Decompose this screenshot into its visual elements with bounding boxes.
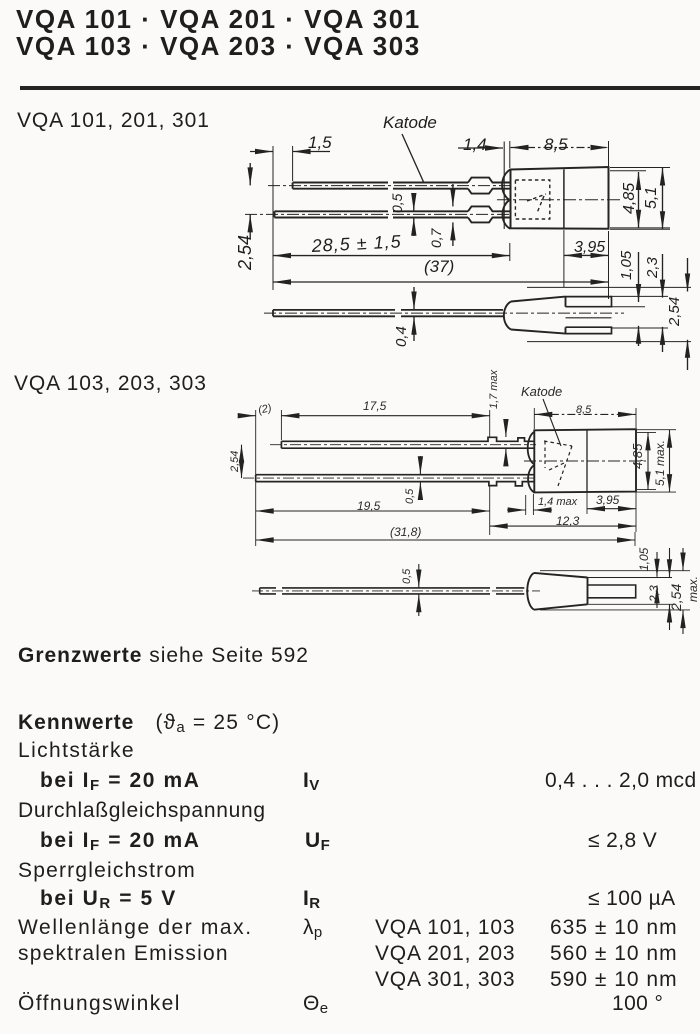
svg-text:3,95: 3,95: [574, 239, 605, 256]
svg-text:Katode: Katode: [521, 384, 562, 399]
svg-text:Katode: Katode: [383, 113, 437, 132]
svg-text:4,85: 4,85: [621, 183, 638, 214]
svg-text:0,7: 0,7: [428, 227, 444, 248]
svg-text:2,54: 2,54: [229, 451, 241, 473]
svg-text:1,05: 1,05: [618, 250, 635, 280]
svg-text:1,7 max: 1,7 max: [488, 369, 500, 409]
svg-text:5,1 max.: 5,1 max.: [653, 440, 667, 486]
svg-text:(31,8): (31,8): [390, 525, 421, 539]
svg-text:8,5: 8,5: [544, 135, 568, 154]
svg-text:4,85: 4,85: [630, 443, 645, 469]
svg-text:(37): (37): [424, 257, 454, 276]
svg-text:17,5: 17,5: [363, 399, 387, 413]
svg-text:2,54: 2,54: [666, 297, 683, 327]
svg-text:1,4: 1,4: [463, 135, 487, 154]
svg-text:3,95: 3,95: [596, 493, 620, 507]
svg-text:(2): (2): [257, 402, 273, 417]
svg-text:28,5 ± 1,5: 28,5 ± 1,5: [310, 231, 402, 256]
svg-text:2,3: 2,3: [644, 256, 661, 279]
svg-text:max.: max.: [686, 576, 700, 602]
svg-text:0,4: 0,4: [393, 326, 410, 347]
svg-text:0,5: 0,5: [401, 568, 413, 584]
svg-text:2,3: 2,3: [647, 585, 661, 603]
svg-text:5,1: 5,1: [643, 187, 660, 209]
svg-text:2,54: 2,54: [668, 584, 684, 612]
svg-text:0,5: 0,5: [389, 193, 405, 213]
svg-text:1,05: 1,05: [637, 547, 651, 571]
svg-text:1,5: 1,5: [308, 133, 332, 152]
svg-text:0,5: 0,5: [404, 488, 416, 504]
svg-text:1,4 max: 1,4 max: [538, 496, 578, 508]
svg-text:2,54: 2,54: [235, 235, 255, 271]
